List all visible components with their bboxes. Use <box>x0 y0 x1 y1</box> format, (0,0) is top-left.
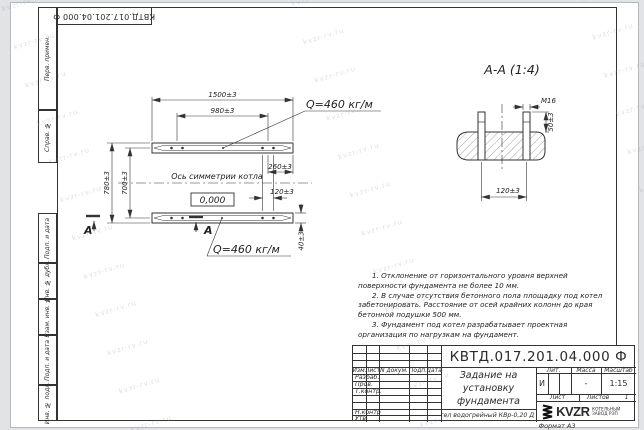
dim-700-label: 700±3 <box>121 171 129 195</box>
dim-40-label: 40±3 <box>298 231 306 250</box>
col-podp: Подп. <box>409 367 427 374</box>
dim-120-section-label: 120±3 <box>496 187 520 195</box>
section-view: А-А (1:4) <box>457 62 549 201</box>
q-leader-top <box>223 111 381 148</box>
level-mark-value: 0,000 <box>200 196 226 206</box>
drawing-title: Задание на установку фундамента <box>441 367 536 409</box>
note-1: 1. Отклонение от горизонтального уровня … <box>358 271 614 291</box>
dim-m16 <box>513 104 540 110</box>
section-title: А-А (1:4) <box>483 62 539 77</box>
symmetry-axis-label: Ось симметрии котла <box>171 172 263 181</box>
col-data: Дата <box>427 367 441 374</box>
scale-value: 1:15 <box>601 373 636 394</box>
row-tkontr: Т.контр. <box>353 388 381 395</box>
sheet-label: Лист <box>536 394 579 401</box>
section-letter-right: А <box>203 224 213 237</box>
mass-value: - <box>571 373 601 394</box>
sheets-label: Листов <box>579 394 617 401</box>
section-letter-left: А <box>83 224 93 237</box>
bolt-size-label: M16 <box>541 97 556 105</box>
note-3: 3. Фундамент под котел разрабатывает про… <box>358 320 614 340</box>
document-number: КВТД.017.201.04.000 Ф <box>441 346 636 367</box>
row-utv: Утв. <box>353 415 381 422</box>
load-label-top: Q=460 кг/м <box>306 98 373 111</box>
logo-text: KVZR <box>556 404 589 419</box>
organization-name: КОТЕЛЬНЫЙ ЗАВОД РЭП <box>592 407 620 416</box>
col-ndocum: N докум. <box>379 367 409 374</box>
row-razrab: Разраб. <box>353 374 381 381</box>
lit-value: И <box>536 373 548 394</box>
row-prov: Пров. <box>353 381 381 388</box>
dim-1500 <box>152 97 293 141</box>
dim-40 <box>295 204 306 232</box>
dim-980-label: 980±3 <box>211 107 235 115</box>
dim-260-label: 260±3 <box>268 163 292 171</box>
dim-120-plan-label: 120±3 <box>270 188 294 196</box>
note-2: 2. В случае отсутствия бетонного пола пл… <box>358 291 614 320</box>
foundation-block <box>457 132 545 160</box>
spring-logo-icon <box>541 404 554 420</box>
dim-1500-label: 1500±3 <box>208 91 236 99</box>
col-izm: Изм. <box>353 367 366 374</box>
col-list: Лист <box>366 367 379 374</box>
dim-980 <box>177 113 268 141</box>
dim-780-label: 780±3 <box>103 171 111 195</box>
product-name: Котел водогрейный КВр-0,20 Д (К) <box>441 409 536 422</box>
dim-50-label: 50±3 <box>547 112 555 131</box>
format-label: Формат А3 <box>527 422 587 430</box>
technical-notes: 1. Отклонение от горизонтального уровня … <box>358 271 614 340</box>
title-block: Изм. Лист N докум. Подп. Дата Разраб. Пр… <box>352 345 635 421</box>
dim-120-section <box>482 162 527 201</box>
manufacturer-logo: KVZR КОТЕЛЬНЫЙ ЗАВОД РЭП <box>536 401 636 422</box>
sheets-value: 1 <box>617 394 636 401</box>
load-label-bottom: Q=460 кг/м <box>213 243 280 256</box>
